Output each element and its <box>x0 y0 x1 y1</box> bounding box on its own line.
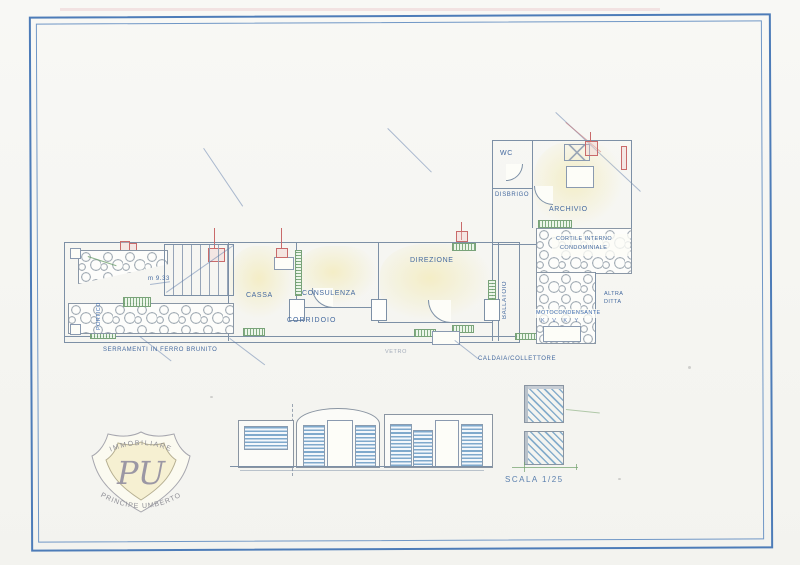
room-label-wc: WC <box>500 150 513 157</box>
dimension-note: m 9.33 <box>148 276 170 282</box>
red-unit-symbol <box>456 231 468 242</box>
boiler-box <box>432 331 460 345</box>
room-label-ballatoio: BALLATOIO <box>502 255 508 319</box>
planter-green <box>123 297 151 307</box>
stone-wall-portico <box>68 303 234 334</box>
pillar <box>484 299 500 321</box>
dimension-tick <box>576 464 577 470</box>
room-label-corridoio: CORRIDOIO <box>287 317 336 324</box>
room-label-direzione: DIREZIONE <box>410 257 454 264</box>
scale-label: SCALA 1/25 <box>505 475 564 484</box>
wall-consulenza-bottom <box>296 307 378 308</box>
detail-square-2 <box>524 431 564 465</box>
elevation-shutter <box>355 425 376 467</box>
company-crest-logo: IMMOBILIARE PU PRINCIPE UMBERTO <box>82 424 200 520</box>
elevation-shutter <box>303 425 325 467</box>
red-stem <box>281 228 282 248</box>
bench-green <box>538 220 572 228</box>
room-label-portico: PORTICO <box>96 298 102 330</box>
sliding-door-green <box>295 250 302 296</box>
wall-ballatoio-left <box>498 242 499 341</box>
scanned-floor-plan-sheet: PORTICO m 9.33 CASSA CONSULENZA CORRIDOI… <box>0 0 800 565</box>
cassa-desk <box>274 257 294 270</box>
boundary-line <box>595 272 596 342</box>
elevation-shutter <box>413 430 433 467</box>
dimension-tick <box>524 462 525 472</box>
archivio-cabinet <box>566 166 594 188</box>
annotation-caldaia: CALDAIA/COLLETTORE <box>478 356 556 362</box>
red-unit-symbol <box>276 248 288 258</box>
ground-line-2 <box>240 470 484 471</box>
column-base <box>70 248 81 259</box>
label-altra-2: DITTA <box>604 299 621 305</box>
red-riser <box>621 146 627 170</box>
annotation-vetro: VETRO <box>385 349 407 355</box>
label-cortile-1: CORTILE INTERNO <box>556 236 612 242</box>
wall-direzione-bottom <box>378 322 492 323</box>
label-motocondensante: MOTOCONDENSANTE <box>536 310 601 316</box>
dimension-line-green <box>512 467 578 468</box>
elevation-shutter <box>390 424 412 467</box>
room-label-cassa: CASSA <box>246 292 273 299</box>
label-motocondensante-sub: K V K Y <box>541 318 581 324</box>
label-cortile-2: CONDOMINIALE <box>560 245 607 251</box>
detail-square-1 <box>524 385 564 423</box>
scan-speck <box>688 366 691 369</box>
ground-line <box>230 466 492 467</box>
crest-monogram: PU <box>116 454 166 492</box>
scan-speck <box>210 396 213 398</box>
room-label-consulenza: CONSULENZA <box>302 290 356 297</box>
elevation-window <box>244 426 288 450</box>
column-base <box>70 324 81 335</box>
elevation-door <box>435 420 459 467</box>
room-label-archivio: ARCHIVIO <box>549 206 588 213</box>
red-unit-symbol <box>585 141 598 156</box>
radiator-direzione-top <box>452 243 476 251</box>
annotation-serramenti: SERRAMENTI IN FERRO BRUNITO <box>103 347 217 353</box>
condenser-unit <box>543 326 581 342</box>
red-stem <box>590 132 591 141</box>
scan-speck <box>618 478 621 480</box>
elevation-shutter <box>461 424 483 467</box>
wall <box>492 188 532 189</box>
label-altra-1: ALTRA <box>604 291 623 297</box>
storefront-window <box>243 328 265 336</box>
elevation-door <box>327 420 353 467</box>
radiator-direzione-right <box>488 280 496 300</box>
room-label-disbrigo: DISBRIGO <box>495 192 529 198</box>
wall <box>532 140 533 228</box>
scan-artifact <box>60 8 660 11</box>
pillar <box>371 299 387 321</box>
